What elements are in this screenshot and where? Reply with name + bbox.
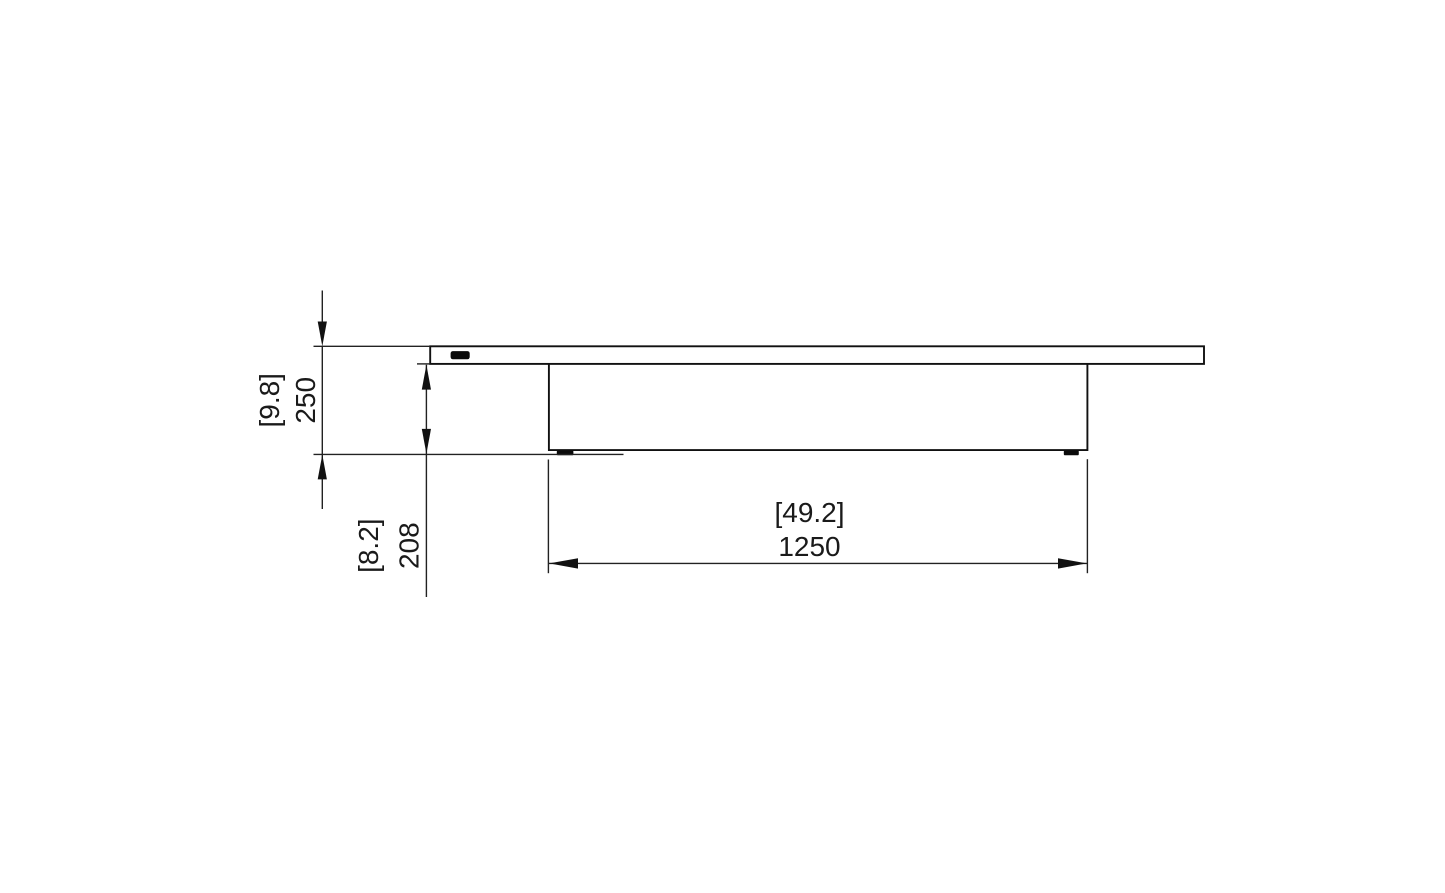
svg-text:208: 208 bbox=[394, 522, 425, 569]
svg-text:[49.2]: [49.2] bbox=[774, 497, 844, 528]
svg-text:250: 250 bbox=[290, 377, 321, 424]
svg-text:[9.8]: [9.8] bbox=[254, 373, 285, 427]
svg-text:1250: 1250 bbox=[778, 531, 840, 562]
svg-text:[8.2]: [8.2] bbox=[353, 518, 384, 572]
